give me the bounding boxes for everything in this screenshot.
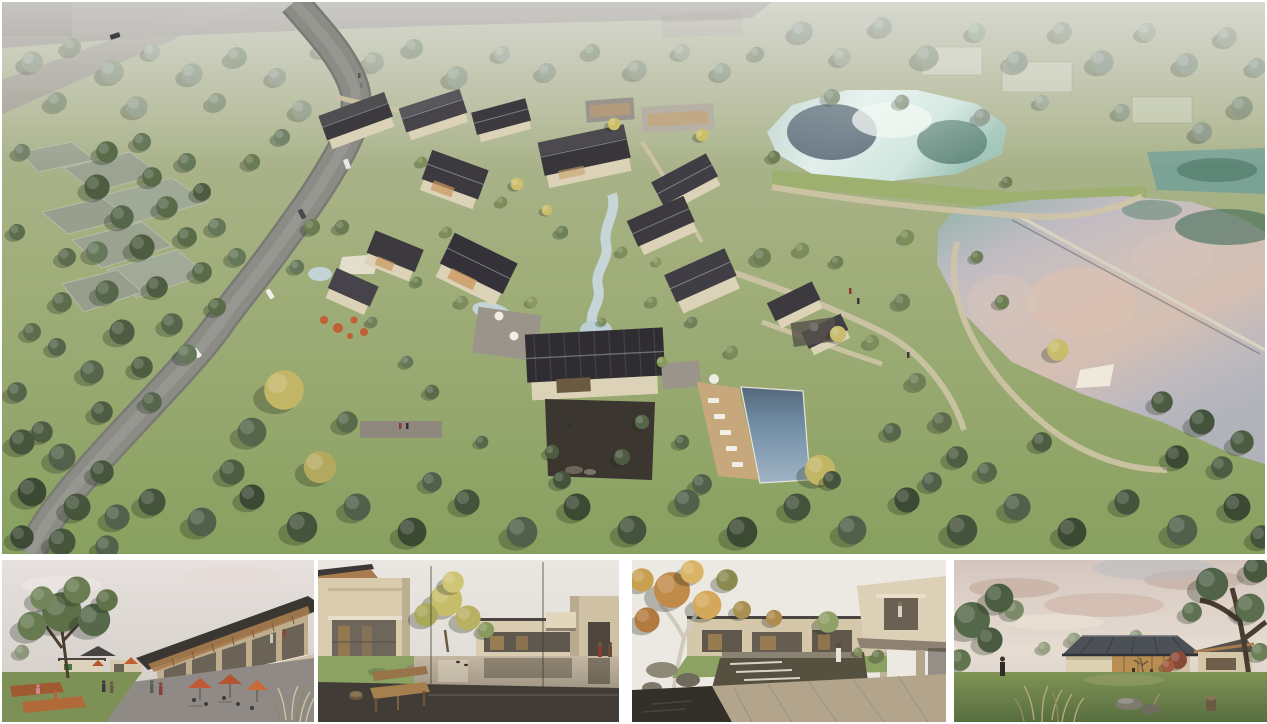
thumbnail-street-plaza bbox=[2, 560, 314, 722]
person bbox=[1000, 657, 1005, 677]
aerial-scene bbox=[2, 2, 1265, 554]
standing-figure bbox=[836, 643, 841, 663]
thumbnail-waterfall-courtyard bbox=[632, 560, 946, 722]
main-lodge bbox=[525, 327, 666, 400]
balcony-figure bbox=[898, 602, 902, 617]
left-house bbox=[318, 564, 410, 670]
garden-pavilion-scene bbox=[954, 560, 1267, 722]
street-plaza-scene bbox=[2, 560, 314, 722]
waterfall-courtyard-scene bbox=[632, 560, 946, 722]
render-collage bbox=[0, 0, 1267, 724]
thumbnail-courtyard-pond bbox=[318, 560, 619, 722]
dark-paving bbox=[318, 682, 619, 722]
stone-courtyard bbox=[545, 399, 655, 480]
stump bbox=[1206, 696, 1216, 712]
aerial-render bbox=[2, 2, 1265, 554]
thumbnail-garden-pavilion bbox=[954, 560, 1267, 722]
haze bbox=[2, 2, 1265, 167]
courtyard-pond-scene bbox=[318, 560, 619, 722]
